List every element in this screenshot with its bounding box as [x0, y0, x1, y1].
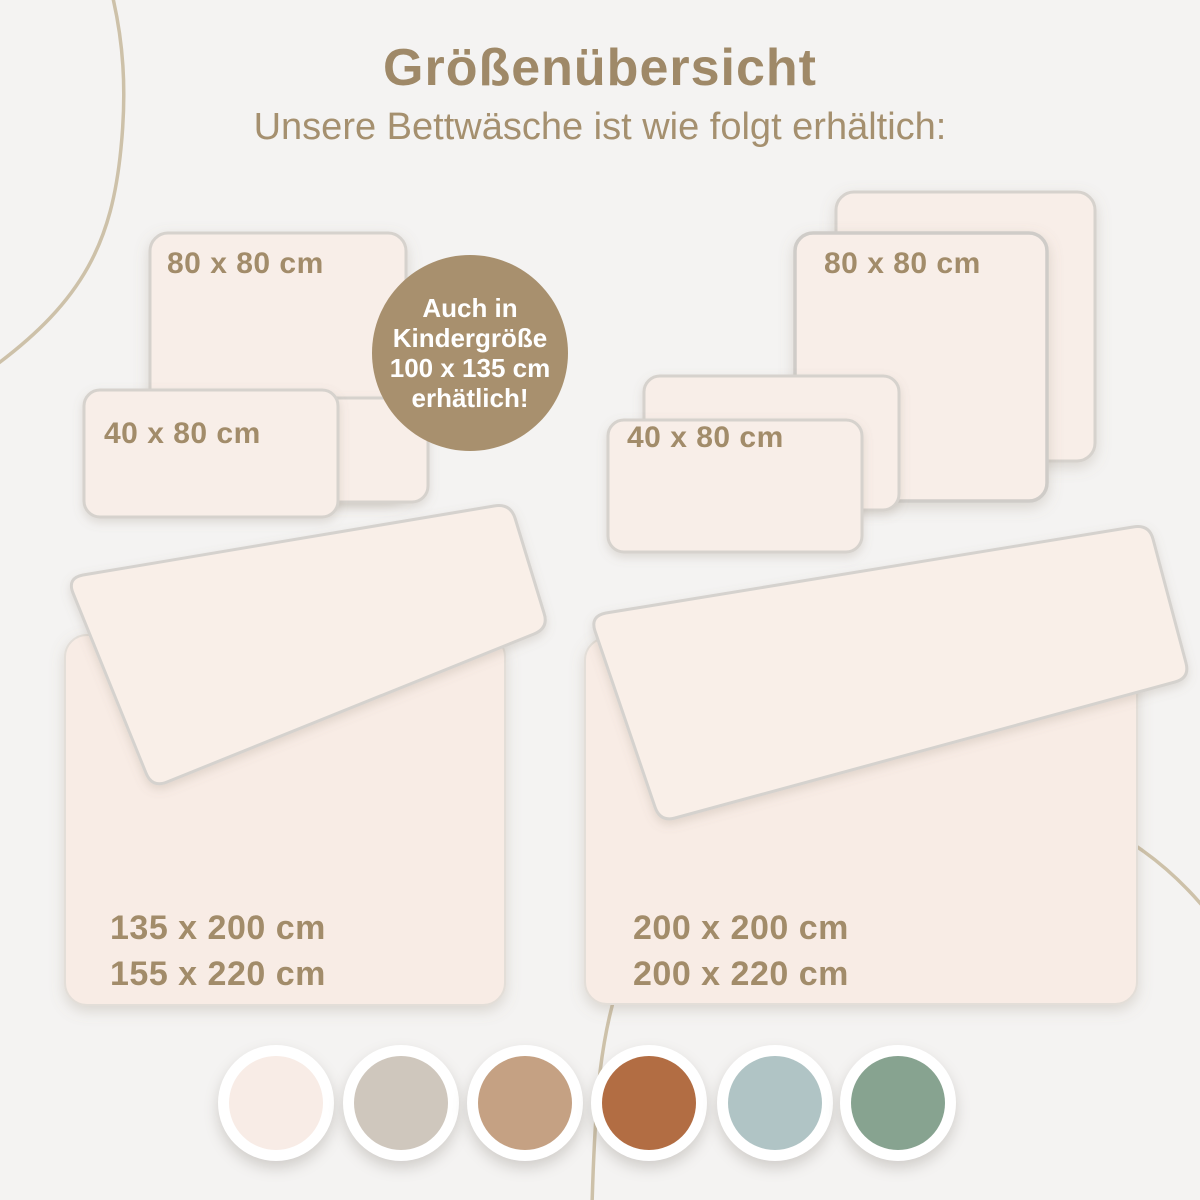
- color-swatch-tan-fill: [478, 1056, 572, 1150]
- duvet-left-size-2: 155 x 220 cm: [110, 951, 326, 997]
- size-overview-infographic: Größenübersicht Unsere Bettwäsche ist wi…: [0, 0, 1200, 1200]
- color-swatch-tan: [467, 1045, 583, 1161]
- color-swatch-greige-fill: [354, 1056, 448, 1150]
- label-right-rect-size: 40 x 80 cm: [627, 421, 784, 455]
- label-left-rect-size: 40 x 80 cm: [104, 417, 261, 451]
- label-duvet-left-sizes: 135 x 200 cm 155 x 220 cm: [110, 905, 326, 997]
- page-title: Größenübersicht: [0, 38, 1200, 98]
- color-swatch-light-blue-fill: [728, 1056, 822, 1150]
- kids-size-badge: Auch in Kindergröße 100 x 135 cm erhätli…: [372, 255, 568, 451]
- badge-line-2: Kindergröße: [393, 323, 548, 353]
- duvet-right-size-2: 200 x 220 cm: [633, 951, 849, 997]
- page-subtitle: Unsere Bettwäsche ist wie folgt erhältic…: [0, 106, 1200, 149]
- badge-line-1: Auch in: [422, 293, 517, 323]
- label-left-square-size: 80 x 80 cm: [167, 247, 324, 281]
- label-right-square-size: 80 x 80 cm: [824, 247, 981, 281]
- badge-line-4: erhätlich!: [411, 383, 528, 413]
- label-duvet-right-sizes: 200 x 200 cm 200 x 220 cm: [633, 905, 849, 997]
- duvet-left-size-1: 135 x 200 cm: [110, 905, 326, 951]
- color-swatch-greige: [343, 1045, 459, 1161]
- color-swatch-terracotta-fill: [602, 1056, 696, 1150]
- color-swatch-terracotta: [591, 1045, 707, 1161]
- color-swatch-cream-fill: [229, 1056, 323, 1150]
- color-swatch-cream: [218, 1045, 334, 1161]
- color-swatch-light-blue: [717, 1045, 833, 1161]
- duvet-right-size-1: 200 x 200 cm: [633, 905, 849, 951]
- illustration-layer: [0, 0, 1200, 1200]
- pillow-left-rect-front: [84, 390, 338, 517]
- badge-line-3: 100 x 135 cm: [390, 353, 550, 383]
- color-swatch-sage: [840, 1045, 956, 1161]
- color-swatch-sage-fill: [851, 1056, 945, 1150]
